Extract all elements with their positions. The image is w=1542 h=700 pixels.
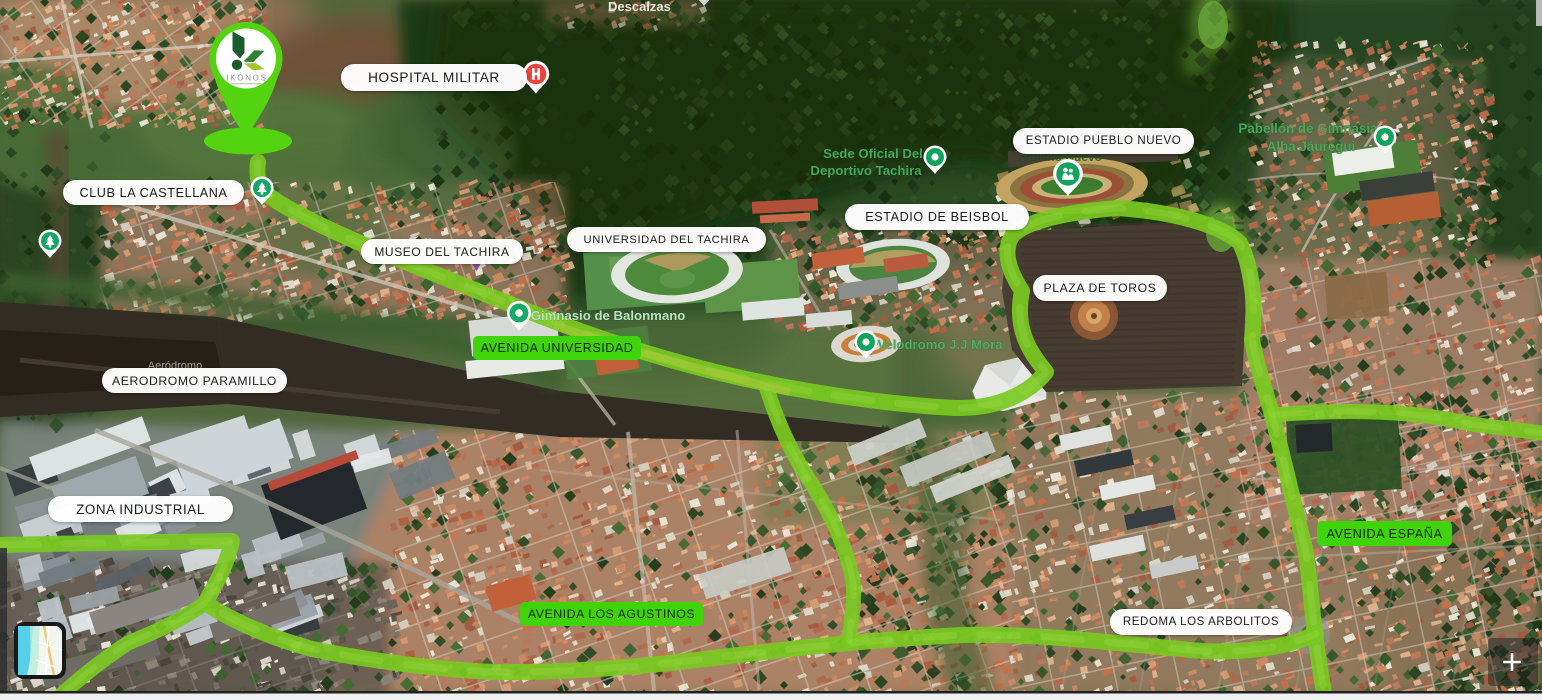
svg-text:Deportivo Tachira: Deportivo Tachira bbox=[810, 163, 922, 178]
svg-text:Sede Oficial Del: Sede Oficial Del bbox=[823, 146, 923, 161]
svg-text:Descalzas: Descalzas bbox=[608, 0, 671, 14]
svg-text:Gimnasio de Balonmano: Gimnasio de Balonmano bbox=[531, 308, 686, 323]
svg-text:Velodromo J.J Mora: Velodromo J.J Mora bbox=[877, 337, 1003, 352]
svg-text:IKONOS: IKONOS bbox=[226, 74, 267, 83]
svg-text:Alba Jáuregui: Alba Jáuregui bbox=[1267, 139, 1356, 154]
svg-text:Pabellón de Gimnasia: Pabellón de Gimnasia bbox=[1238, 121, 1378, 136]
